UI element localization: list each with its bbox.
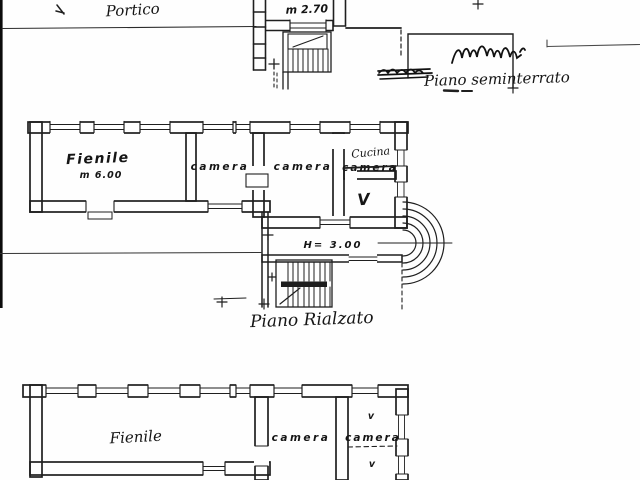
cucina-handwritten-label: Cucina <box>351 144 391 160</box>
floor-title-seminterrato: Piano seminterrato <box>423 68 570 90</box>
dashed-room-line <box>348 446 397 447</box>
plan-piano-superiore: Fienile camera camera v v <box>23 384 409 480</box>
windows-right-wall <box>395 415 409 474</box>
wall-left <box>30 122 42 212</box>
portico-edge-line <box>2 27 256 29</box>
camera2-label: camera <box>274 161 333 173</box>
survey-crosses <box>214 230 276 309</box>
staircase-seminterrato <box>277 32 331 89</box>
camera2-label: camera <box>345 432 401 444</box>
window-bottom <box>208 200 242 213</box>
portico-label: Portico <box>104 0 160 20</box>
vano-label: V <box>357 189 372 209</box>
window-fienile-bottom <box>203 461 225 476</box>
plan-rialzato: Fienile m 6.00 camera camera Cucina came… <box>0 121 452 332</box>
floor-title-rialzato: Piano Rialzato <box>249 308 374 332</box>
windows-top-wall <box>46 384 378 398</box>
wall-vertical-right <box>334 0 346 26</box>
vent-mark-top: v <box>368 411 375 422</box>
hall-height-label: H= 3.00 <box>304 240 363 251</box>
stair-height-label: m 2.70 <box>285 2 328 16</box>
curved-steps <box>378 202 452 311</box>
vent-mark-bottom: v <box>369 459 376 470</box>
scan-edge-artifact <box>0 0 3 308</box>
stair-extension <box>214 212 402 309</box>
scanned-floor-plan-document: Portico m 2.70 Piano seminterrato <box>0 0 640 480</box>
staircase-rialzato <box>276 260 332 307</box>
pen-tick-mark <box>56 5 64 14</box>
fienile-height-label: m 6.00 <box>80 170 123 181</box>
wall-vertical-left <box>254 0 266 70</box>
camera1-label: camera <box>272 432 331 444</box>
wall-left <box>30 385 42 477</box>
stair-landing <box>281 282 327 288</box>
wall-fienile-bottom <box>30 462 270 475</box>
ground-line <box>0 253 262 254</box>
partition-fienile-camera <box>255 397 268 480</box>
door-opening-partition <box>254 446 269 466</box>
fienile-label: Fienile <box>66 150 130 168</box>
handwriting-scribble <box>452 46 525 63</box>
window-bottom-right <box>320 216 350 229</box>
camera1-label: camera <box>191 161 250 173</box>
wall-horizontal-top <box>266 19 333 32</box>
door-opening-bottom <box>86 200 114 219</box>
floor-plan-drawing: Portico m 2.70 Piano seminterrato <box>0 0 640 480</box>
windows-top-wall <box>50 121 380 134</box>
fienile-label: Fienile <box>108 427 162 448</box>
edge-line-top-right <box>547 40 640 47</box>
